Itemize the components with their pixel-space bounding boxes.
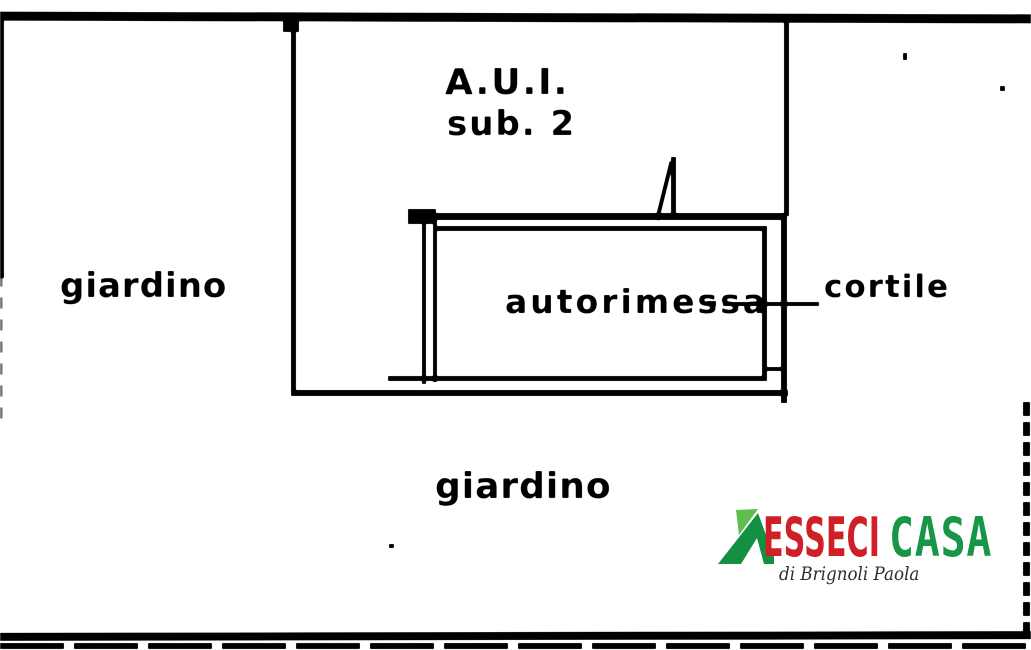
agency-logo: ESSECI CASA di Brignoli Paola (713, 503, 1015, 600)
garage-right-wall-outer (781, 213, 787, 403)
plan-bottom-border-secondary (0, 643, 1031, 649)
floor-plan-scan: A.U.I. sub. 2 giardino autorimessa corti… (0, 0, 1031, 650)
garage-top-wall-outer (408, 213, 787, 220)
unit-label-line2: sub. 2 (447, 104, 576, 144)
garage-left-wall-outer (422, 214, 426, 384)
brand-name-secondary: CASA (889, 511, 992, 565)
plan-top-border (0, 12, 1031, 24)
garage-bottom-wall-inner (388, 376, 767, 381)
plan-right-edge-streak (1023, 402, 1030, 634)
parcel-right-wall (784, 20, 789, 216)
scan-speck (903, 53, 907, 60)
plan-left-border-faint (0, 275, 3, 430)
parcel-left-wall (291, 22, 296, 394)
garden-bottom-label: giardino (435, 466, 612, 507)
brand-tagline: di Brignoli Paola (779, 563, 919, 585)
garage-left-wall-inner (433, 216, 437, 382)
garage-wall-connector (762, 367, 787, 371)
brand-name-primary: ESSECI (763, 511, 880, 565)
scan-speck (389, 544, 394, 548)
scan-speck (1000, 86, 1005, 91)
parcel-bottom-wall (291, 390, 788, 396)
garden-left-label: giardino (60, 266, 227, 306)
garage-label: autorimessa (505, 282, 768, 321)
courtyard-label: cortile (824, 269, 950, 305)
garage-top-wall-inner (436, 226, 766, 231)
unit-label-line1: A.U.I. (445, 62, 569, 103)
plan-left-border (0, 13, 4, 278)
plan-bottom-border (0, 631, 1031, 641)
garage-top-wall-pillar (408, 209, 436, 224)
